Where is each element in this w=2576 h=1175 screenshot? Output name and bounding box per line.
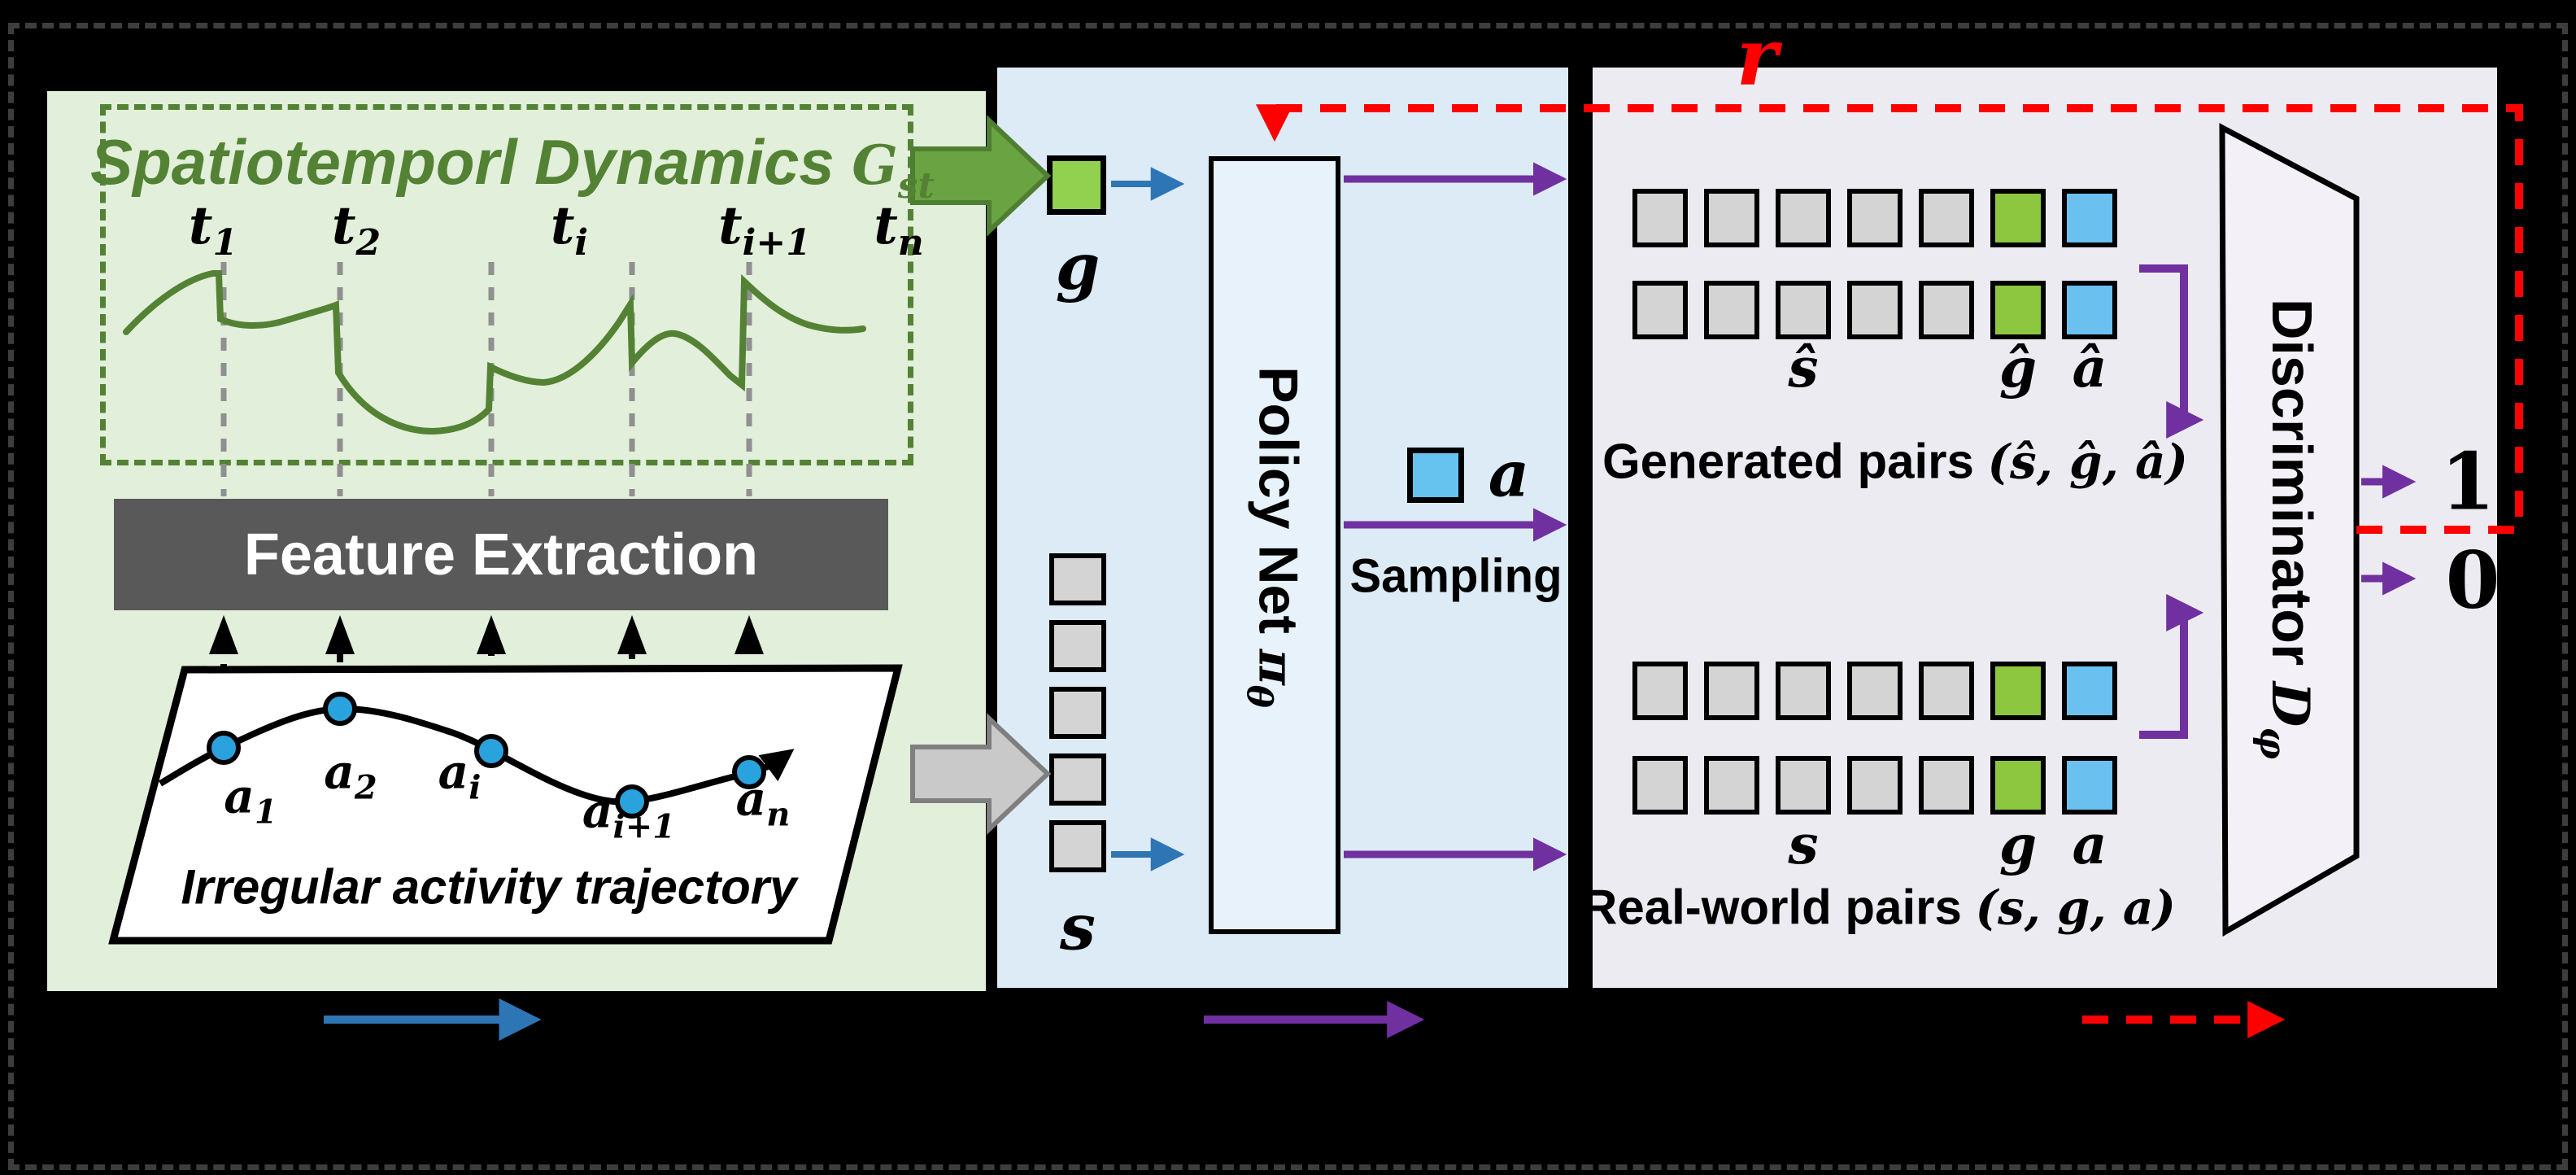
time-label-ti1: ti+1 <box>718 195 811 264</box>
state-block-arrow <box>913 719 1048 829</box>
point-label-ai: ai <box>438 745 482 807</box>
trajectory-caption: Irregular activity trajectory <box>181 859 796 915</box>
generated-to-disc-arrow <box>2139 269 2196 420</box>
discriminator-label: Discriminator Dφ <box>2251 299 2325 759</box>
generated-s-label: ŝ <box>1788 336 1818 400</box>
action-label: a <box>1489 438 1530 512</box>
policy-net-label: Policy Net πθ <box>1240 366 1310 708</box>
generated-a-label: â <box>2073 336 2107 400</box>
real-to-disc-arrow <box>2139 613 2196 735</box>
real-g-label: g <box>1999 813 2037 876</box>
generated-g-label: ĝ <box>1999 336 2037 400</box>
time-gridlines <box>224 262 749 496</box>
generated-caption: Generated pairs (ŝ, ĝ, â) <box>1602 434 2188 490</box>
feature-input-arrowheads <box>209 615 764 654</box>
time-label-t1: t1 <box>189 195 238 264</box>
real-caption: Real-world pairs (s, g, a) <box>1582 880 2176 936</box>
point-label-ai1: ai+1 <box>582 784 675 846</box>
state-label: s <box>1060 891 1096 965</box>
output-one: 1 <box>2441 436 2495 528</box>
real-s-label: s <box>1788 813 1818 876</box>
time-label-ti: ti <box>551 195 588 264</box>
dynamics-title: Spatiotemporl Dynamics Gst <box>90 125 935 207</box>
sampling-label: Sampling <box>1349 549 1562 604</box>
dynamics-curve <box>126 273 863 431</box>
time-label-t2: t2 <box>332 195 381 264</box>
output-zero: 0 <box>2446 535 2500 627</box>
point-label-a1: a1 <box>224 769 277 832</box>
dynamics-title-symbol: G <box>852 133 897 197</box>
reward-label: r <box>1737 11 1778 103</box>
point-label-a2: a2 <box>324 745 377 807</box>
figure-canvas: Feature Extraction <box>0 0 2576 1175</box>
dynamics-title-text: Spatiotemporl Dynamics <box>90 126 835 198</box>
point-label-an: an <box>736 771 791 834</box>
time-label-tn: tn <box>874 195 924 264</box>
goal-label: g <box>1056 230 1101 304</box>
real-a-label: a <box>2073 813 2107 876</box>
